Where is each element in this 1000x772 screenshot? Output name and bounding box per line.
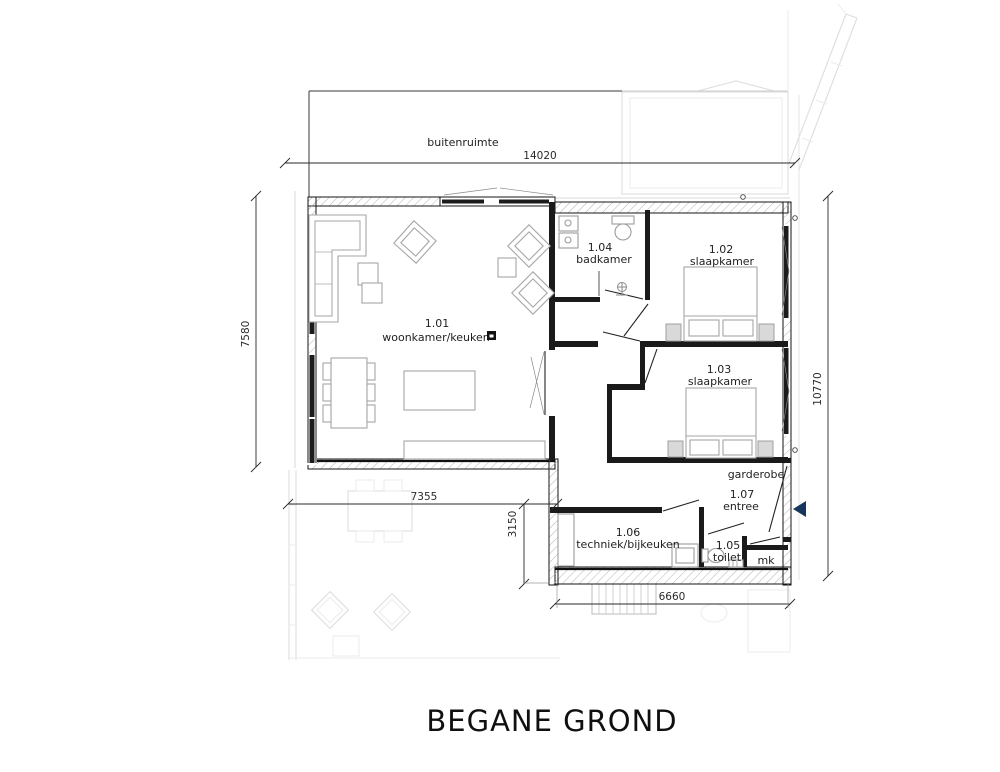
room-name-slaapkamer-102: slaapkamer xyxy=(690,255,755,268)
nightstand xyxy=(666,324,681,341)
dim-right-value: 10770 xyxy=(812,372,824,405)
dim-left: 7580 xyxy=(240,191,261,472)
pillow xyxy=(689,320,719,336)
kitchen-counter xyxy=(404,441,545,459)
label-meterkast: mk xyxy=(757,554,775,567)
dim-top: 14020 xyxy=(280,150,800,168)
dim-bottom-left: 7355 xyxy=(283,491,562,509)
dim-left-value: 7580 xyxy=(240,321,252,348)
dim-middle-value: 3150 xyxy=(507,511,519,538)
entrance-arrow-icon xyxy=(793,501,806,517)
pillow xyxy=(723,320,753,336)
room-name-badkamer: badkamer xyxy=(576,253,632,266)
dim-bottom: 6660 xyxy=(550,584,795,609)
label-garderobe: garderobe xyxy=(728,468,785,481)
rainpipe-icon xyxy=(741,195,746,200)
entrance-steps xyxy=(592,584,656,614)
outdoor-label: buitenruimte xyxy=(427,136,499,149)
furniture-bedroom-102 xyxy=(666,267,774,341)
armchair xyxy=(394,221,436,263)
dim-bottom-left-value: 7355 xyxy=(411,491,438,503)
toilet-fixture xyxy=(612,216,634,224)
side-table xyxy=(358,263,378,285)
dining-table xyxy=(331,358,367,428)
pillow xyxy=(723,440,752,455)
ghost-upper-level xyxy=(622,4,857,194)
room-name-slaapkamer-103: slaapkamer xyxy=(688,375,753,388)
utility-counter xyxy=(558,514,574,566)
room-number-woonkamer: 1.01 xyxy=(425,317,450,330)
floorplan-drawing: buitenruimte xyxy=(0,0,1000,772)
nightstand xyxy=(668,441,683,457)
outdoor-area: buitenruimte xyxy=(309,91,788,197)
side-table xyxy=(362,283,382,303)
room-name-techniek: techniek/bijkeuken xyxy=(576,538,680,551)
pillow xyxy=(690,440,719,455)
nightstand xyxy=(758,441,773,457)
furniture-bedroom-103 xyxy=(668,388,773,458)
dim-bottom-value: 6660 xyxy=(659,591,686,603)
dim-middle: 3150 xyxy=(507,499,548,589)
dim-top-value: 14020 xyxy=(523,150,556,162)
dim-right: 10770 xyxy=(812,191,833,581)
kitchen-island xyxy=(404,371,475,410)
room-name-entree: entree xyxy=(723,500,759,513)
toilet-fixture xyxy=(702,549,708,562)
room-name-woonkamer: woonkamer/keuken xyxy=(382,331,490,344)
rainpipe-icon xyxy=(793,448,798,453)
floorplan-page: buitenruimte xyxy=(0,0,1000,772)
room-name-toilet: toilet xyxy=(713,551,742,564)
side-table xyxy=(498,258,516,277)
rainpipe-icon xyxy=(793,216,798,221)
nightstand xyxy=(759,324,774,341)
plan-title: BEGANE GROND xyxy=(426,704,677,738)
armchair xyxy=(512,272,554,314)
